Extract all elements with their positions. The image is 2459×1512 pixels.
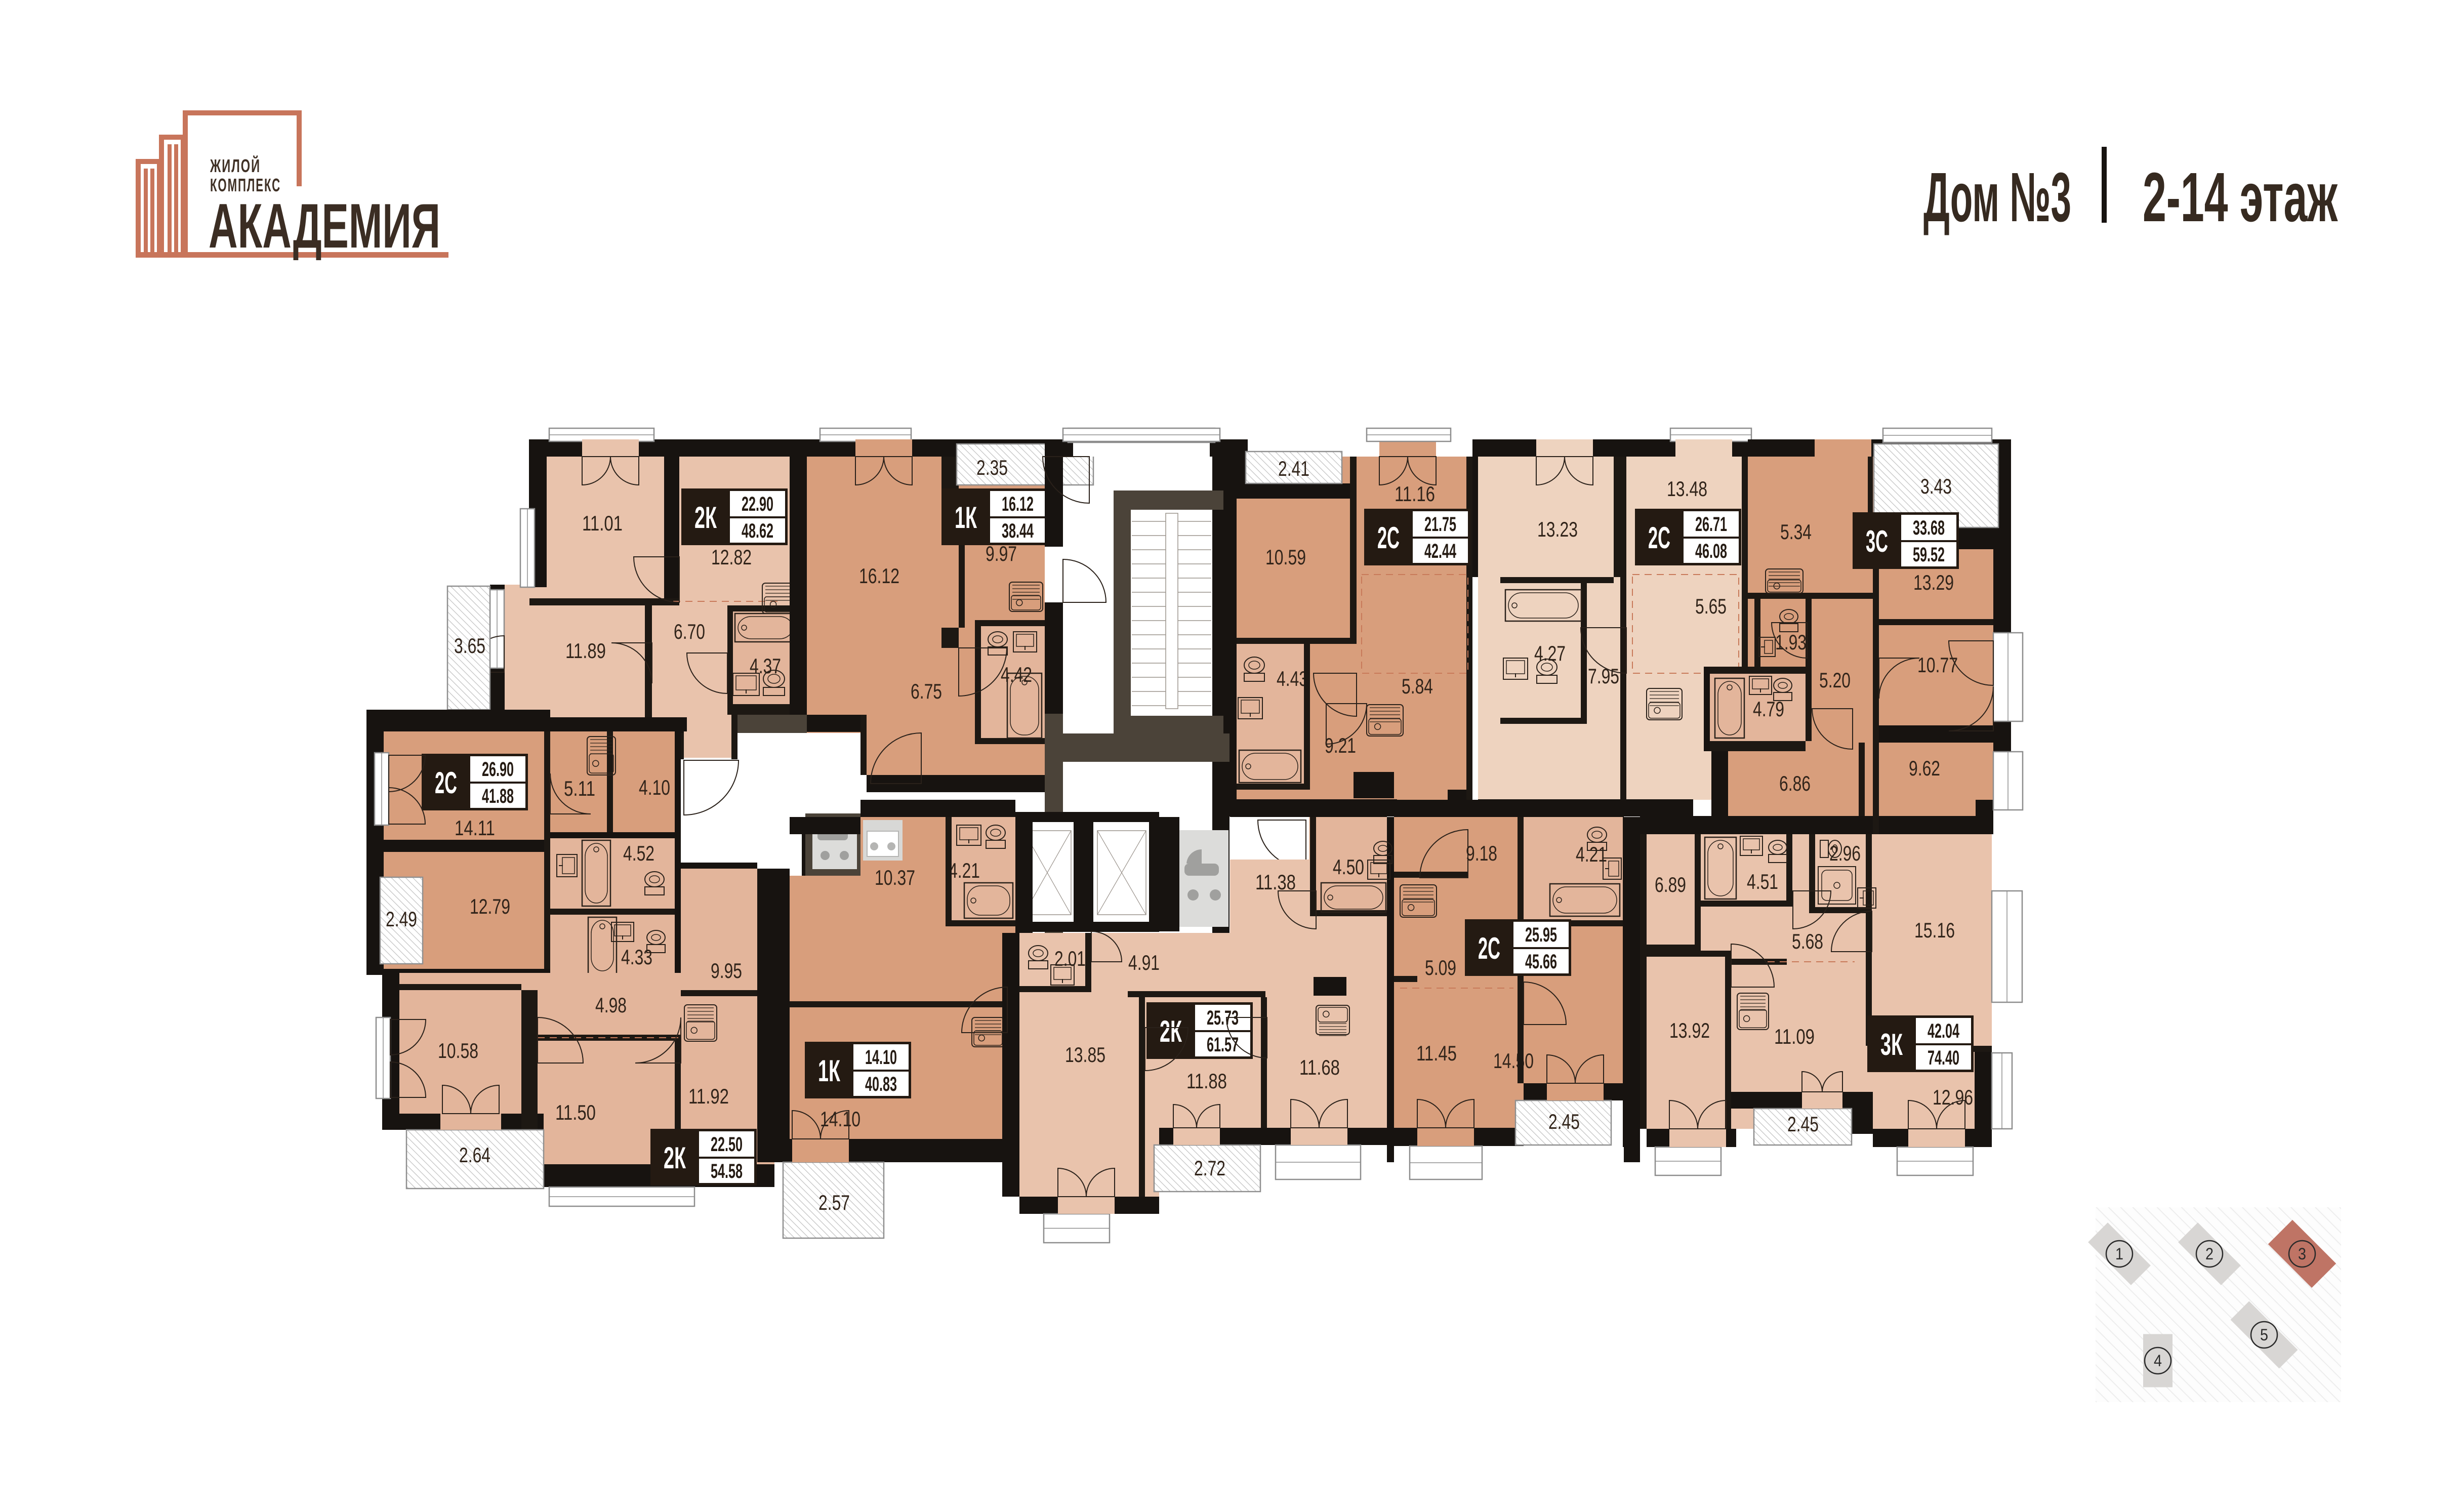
svg-text:6.86: 6.86	[1779, 771, 1811, 795]
svg-text:5: 5	[2260, 1326, 2268, 1344]
svg-text:15.16: 15.16	[1914, 918, 1955, 942]
svg-text:2.57: 2.57	[818, 1191, 850, 1214]
svg-text:4.21: 4.21	[1576, 842, 1607, 866]
svg-text:40.83: 40.83	[865, 1073, 897, 1095]
svg-text:10.58: 10.58	[438, 1039, 478, 1063]
svg-text:14.11: 14.11	[455, 816, 495, 840]
svg-text:14.10: 14.10	[865, 1046, 897, 1069]
svg-text:2К: 2К	[664, 1141, 686, 1175]
svg-text:1К: 1К	[818, 1054, 840, 1088]
svg-text:41.88: 41.88	[482, 785, 514, 807]
svg-text:11.50: 11.50	[555, 1100, 596, 1124]
svg-text:16.12: 16.12	[1002, 493, 1034, 515]
svg-text:61.57: 61.57	[1207, 1034, 1239, 1056]
svg-text:2К: 2К	[1160, 1014, 1182, 1048]
svg-text:5.65: 5.65	[1695, 594, 1727, 618]
svg-text:13.48: 13.48	[1667, 477, 1707, 501]
svg-text:3.65: 3.65	[454, 634, 485, 658]
svg-text:5.20: 5.20	[1819, 668, 1851, 692]
svg-text:9.97: 9.97	[986, 542, 1017, 565]
svg-text:1К: 1К	[955, 501, 977, 535]
svg-text:12.82: 12.82	[711, 545, 752, 569]
svg-text:5.68: 5.68	[1792, 929, 1823, 953]
svg-text:11.16: 11.16	[1395, 482, 1435, 506]
svg-text:2.72: 2.72	[1194, 1156, 1225, 1180]
svg-text:45.66: 45.66	[1525, 951, 1557, 973]
svg-text:4.42: 4.42	[1001, 663, 1032, 686]
svg-text:2С: 2С	[1377, 521, 1400, 555]
svg-text:21.75: 21.75	[1424, 513, 1456, 536]
svg-text:26.90: 26.90	[482, 758, 514, 781]
svg-text:ЖИЛОЙ: ЖИЛОЙ	[210, 155, 261, 176]
svg-text:11.89: 11.89	[565, 639, 606, 663]
svg-text:14.50: 14.50	[1493, 1049, 1534, 1073]
svg-text:9.95: 9.95	[711, 959, 742, 983]
svg-text:4.52: 4.52	[623, 841, 654, 865]
svg-text:2С: 2С	[435, 766, 457, 800]
svg-text:1.93: 1.93	[1775, 630, 1807, 654]
svg-text:2: 2	[2205, 1245, 2214, 1263]
svg-text:26.71: 26.71	[1695, 513, 1727, 536]
svg-text:Дом №3: Дом №3	[1923, 158, 2071, 236]
svg-text:5.84: 5.84	[1402, 674, 1433, 698]
svg-text:46.08: 46.08	[1695, 540, 1727, 562]
svg-text:9.21: 9.21	[1325, 733, 1356, 757]
svg-text:13.29: 13.29	[1913, 570, 1954, 594]
svg-text:3К: 3К	[1880, 1028, 1903, 1061]
svg-text:2.01: 2.01	[1054, 947, 1086, 970]
svg-text:2С: 2С	[1648, 521, 1670, 555]
svg-text:13.92: 13.92	[1669, 1018, 1710, 1042]
svg-text:1: 1	[2115, 1245, 2123, 1263]
svg-text:14.10: 14.10	[820, 1107, 860, 1131]
svg-text:6.75: 6.75	[911, 679, 942, 703]
svg-text:4.50: 4.50	[1333, 855, 1364, 879]
svg-text:33.68: 33.68	[1913, 517, 1945, 539]
svg-text:4.10: 4.10	[639, 775, 670, 799]
svg-text:11.88: 11.88	[1186, 1069, 1227, 1093]
svg-text:13.23: 13.23	[1537, 517, 1578, 541]
svg-text:5.11: 5.11	[564, 777, 595, 800]
svg-text:2.45: 2.45	[1548, 1110, 1580, 1133]
svg-text:74.40: 74.40	[1928, 1047, 1959, 1069]
svg-text:4.43: 4.43	[1277, 667, 1308, 690]
svg-text:42.04: 42.04	[1928, 1020, 1959, 1042]
svg-text:12.96: 12.96	[1933, 1085, 1973, 1109]
svg-text:4.51: 4.51	[1747, 870, 1778, 893]
svg-text:11.68: 11.68	[1299, 1055, 1340, 1079]
svg-text:3: 3	[2298, 1245, 2306, 1263]
svg-text:10.59: 10.59	[1265, 545, 1306, 569]
svg-text:42.44: 42.44	[1424, 540, 1456, 562]
svg-text:2.41: 2.41	[1278, 457, 1309, 480]
svg-text:9.62: 9.62	[1909, 756, 1940, 780]
svg-text:38.44: 38.44	[1002, 520, 1034, 542]
svg-text:54.58: 54.58	[711, 1160, 743, 1182]
svg-text:11.09: 11.09	[1774, 1025, 1815, 1048]
svg-text:5.09: 5.09	[1425, 956, 1456, 979]
svg-text:48.62: 48.62	[742, 520, 773, 542]
svg-text:11.01: 11.01	[582, 511, 623, 535]
svg-text:5.34: 5.34	[1780, 520, 1812, 544]
svg-text:6.89: 6.89	[1655, 873, 1686, 896]
svg-text:13.85: 13.85	[1065, 1043, 1105, 1067]
svg-text:4.33: 4.33	[621, 945, 652, 969]
svg-text:22.90: 22.90	[742, 493, 773, 515]
svg-text:59.52: 59.52	[1913, 544, 1945, 566]
svg-text:4.98: 4.98	[595, 993, 627, 1017]
svg-text:12.79: 12.79	[470, 894, 510, 918]
svg-text:2.49: 2.49	[386, 907, 417, 931]
svg-text:2.45: 2.45	[1787, 1112, 1819, 1136]
svg-text:6.70: 6.70	[674, 620, 705, 643]
svg-text:2-14 этаж: 2-14 этаж	[2143, 158, 2338, 236]
svg-text:2К: 2К	[694, 501, 717, 535]
svg-text:11.45: 11.45	[1416, 1041, 1457, 1065]
svg-text:4.91: 4.91	[1128, 951, 1160, 974]
svg-text:3.43: 3.43	[1920, 474, 1952, 498]
svg-text:2.35: 2.35	[976, 456, 1008, 479]
svg-text:4: 4	[2154, 1352, 2162, 1370]
svg-text:11.92: 11.92	[688, 1084, 729, 1108]
svg-text:9.18: 9.18	[1466, 841, 1497, 865]
svg-text:22.50: 22.50	[711, 1133, 743, 1156]
svg-text:АКАДЕМИЯ: АКАДЕМИЯ	[209, 191, 440, 261]
svg-text:4.21: 4.21	[949, 859, 980, 882]
svg-text:3С: 3С	[1866, 524, 1888, 558]
svg-text:2С: 2С	[1478, 931, 1500, 965]
svg-text:11.38: 11.38	[1255, 870, 1296, 894]
svg-text:10.37: 10.37	[875, 866, 915, 889]
svg-text:2.64: 2.64	[459, 1143, 490, 1167]
svg-text:16.12: 16.12	[859, 564, 899, 588]
svg-text:25.95: 25.95	[1525, 924, 1557, 946]
